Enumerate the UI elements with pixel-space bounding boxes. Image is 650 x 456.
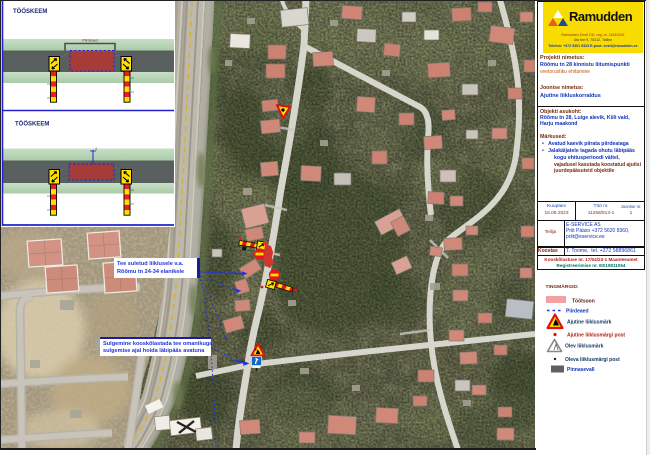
svg-text:Töötsoon: Töötsoon	[572, 299, 595, 305]
svg-text:Pinnasevall: Pinnasevall	[567, 367, 595, 373]
svg-text:TÖÖSKEEM: TÖÖSKEEM	[15, 121, 49, 128]
svg-text:Olev liiklusmärk: Olev liiklusmärk	[565, 344, 604, 350]
svg-text:Oleva liiklusmärgi post: Oleva liiklusmärgi post	[565, 357, 620, 363]
svg-text:4: 4	[95, 147, 97, 151]
svg-text:Ajutine liiklusmärk: Ajutine liiklusmärk	[567, 320, 612, 326]
svg-text:TÖÖSKEEM: TÖÖSKEEM	[13, 8, 47, 15]
svg-text:Piirdeaed: Piirdeaed	[82, 39, 97, 43]
svg-text:Piirdeaed: Piirdeaed	[566, 309, 589, 315]
svg-text:Ajutine liiklusmärgi post: Ajutine liiklusmärgi post	[567, 333, 625, 339]
